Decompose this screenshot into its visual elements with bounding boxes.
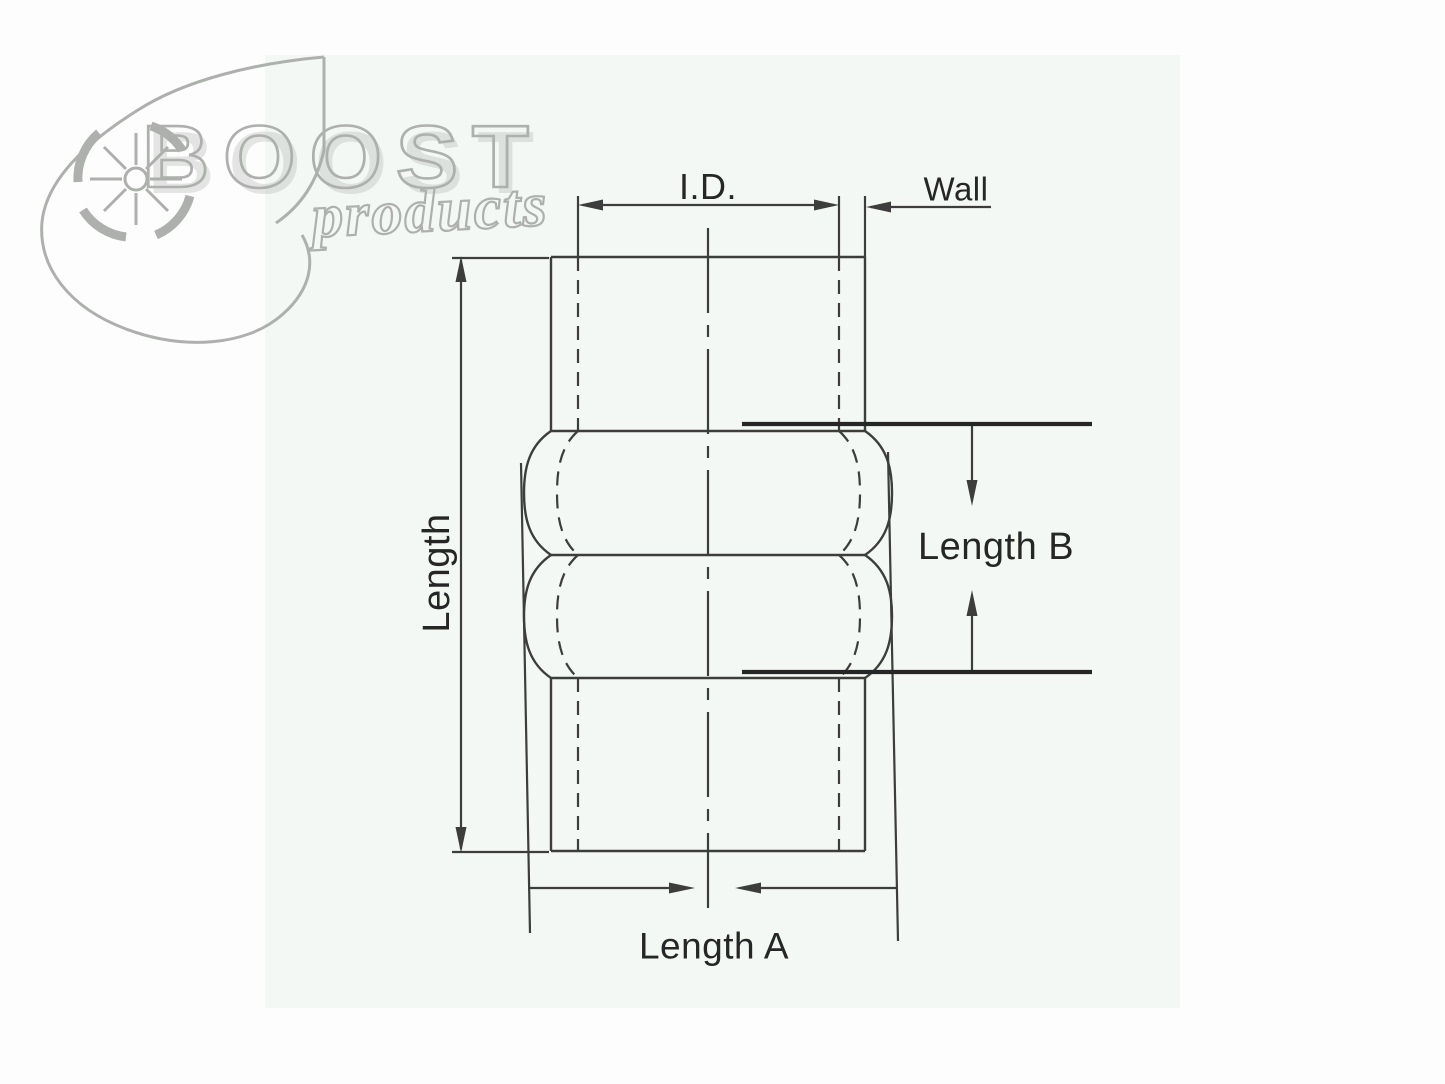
inner-diameter-label: I.D. <box>679 169 737 205</box>
length-a-label: Length A <box>639 928 789 965</box>
boost-products-logo: BOOST products <box>30 30 590 360</box>
wall-label: Wall <box>924 173 989 206</box>
length-b-label: Length B <box>918 528 1074 566</box>
product-diagram-canvas: BOOST products I.D. Wall Length Length B… <box>0 0 1445 1084</box>
logo-brand-subtext: products <box>310 170 550 253</box>
length-label: Length <box>418 513 456 632</box>
